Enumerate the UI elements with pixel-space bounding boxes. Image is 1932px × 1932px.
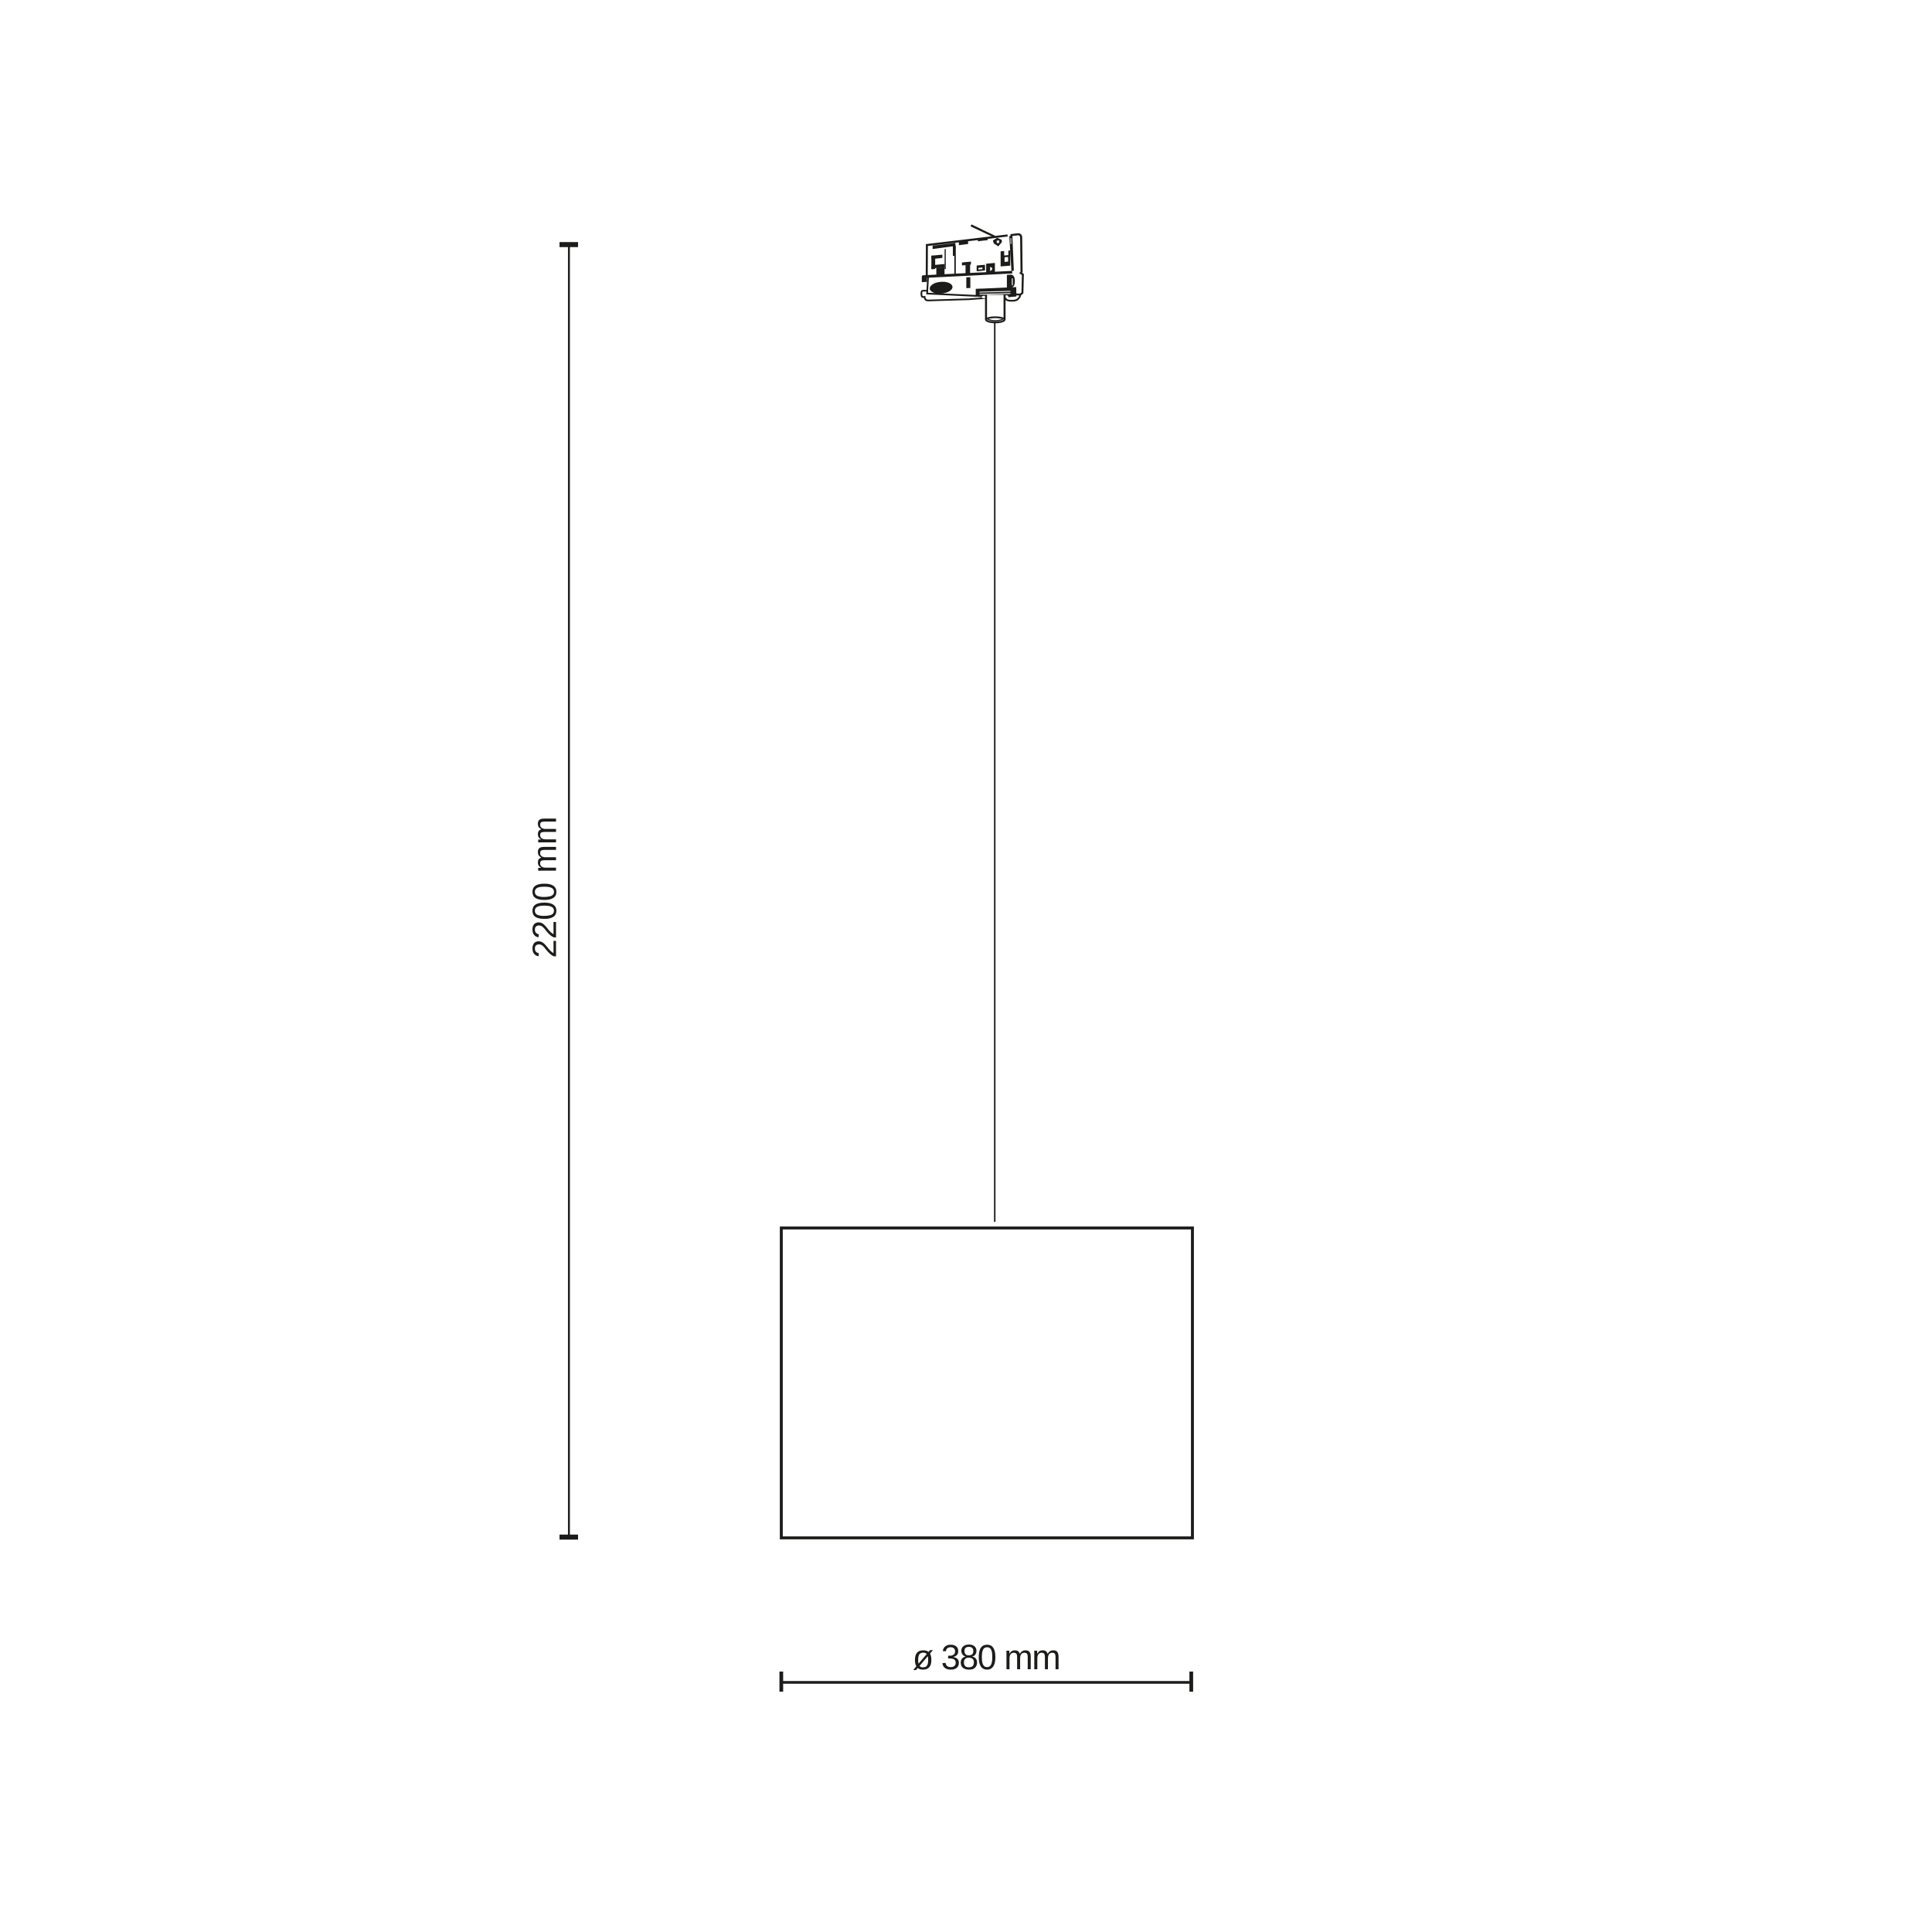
- svg-text:2200 mm: 2200 mm: [526, 816, 564, 957]
- svg-text:ø 380 mm: ø 380 mm: [913, 1638, 1060, 1677]
